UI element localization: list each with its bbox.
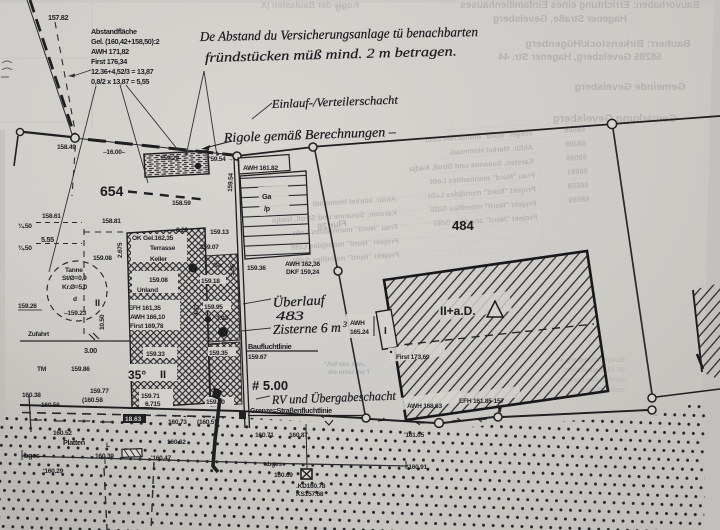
svg-text:"Auf des saw..: "Auf des saw.. [324, 361, 367, 368]
svg-text:160.87: 160.87 [289, 432, 308, 439]
svg-text:66659: 66659 [567, 180, 588, 190]
svg-text:First 176,34: First 176,34 [91, 57, 128, 66]
svg-text:159.26: 159.26 [18, 303, 37, 310]
svg-text:Ga: Ga [262, 192, 272, 201]
svg-text:2.675: 2.675 [117, 242, 124, 258]
svg-text:Zisterne 6 m: Zisterne 6 m [273, 320, 342, 337]
svg-text:159.08: 159.08 [93, 255, 112, 262]
svg-text:Kr.Ø=5,0: Kr.Ø=5,0 [62, 284, 88, 291]
svg-text:3.03: 3.03 [216, 315, 228, 322]
svg-text:160.56: 160.56 [41, 402, 60, 409]
svg-text:II+a.D.: II+a.D. [440, 304, 476, 318]
svg-text:18.63: 18.63 [125, 416, 142, 423]
svg-text:159.33: 159.33 [146, 351, 165, 358]
svg-text:159.54: 159.54 [227, 173, 235, 193]
svg-text:159.36: 159.36 [247, 265, 266, 272]
svg-text:165.24: 165.24 [350, 329, 369, 336]
svg-text:'160.91: '160.91 [407, 464, 428, 471]
svg-text:160.38: 160.38 [22, 392, 41, 399]
svg-text:Abstandfläche: Abstandfläche [91, 27, 137, 36]
svg-text:157.82: 157.82 [48, 13, 69, 22]
svg-text:Unland: Unland [137, 287, 158, 294]
svg-text:5.55: 5.55 [229, 263, 237, 276]
svg-text:# 5.00: # 5.00 [252, 378, 288, 393]
svg-text:First 173,69: First 173,69 [396, 354, 430, 361]
svg-text:AWH: AWH [350, 320, 365, 327]
svg-text:EFH 161,35: EFH 161,35 [128, 305, 161, 312]
svg-text:Baufluchtlinie: Baufluchtlinie [248, 342, 292, 351]
svg-text:159.18: 159.18 [201, 278, 220, 285]
svg-text:158.59: 158.59 [172, 200, 191, 207]
svg-text:AWH 161.82: AWH 161.82 [243, 165, 278, 172]
svg-text:159.35: 159.35 [209, 350, 228, 357]
svg-text:654: 654 [100, 183, 124, 199]
svg-text:158.81: 158.81 [102, 218, 121, 225]
svg-text:4.67: 4.67 [193, 303, 201, 316]
svg-text:8.20: 8.20 [176, 227, 188, 234]
svg-text:abges: abges [264, 461, 282, 468]
svg-text:Terrasse: Terrasse [150, 245, 176, 252]
svg-text:AWH 168.63: AWH 168.63 [407, 403, 442, 410]
svg-text:.KD160.78: .KD160.78 [296, 483, 326, 490]
svg-text:KS157.68: KS157.68 [296, 491, 324, 498]
svg-text:I: I [384, 326, 387, 337]
svg-text:(160.5): (160.5) [197, 419, 216, 426]
svg-text:(160.58: (160.58 [82, 397, 103, 404]
svg-text:Bauvorhaben: Errichtung eines: Bauvorhaben: Errichtung eines Einfamilie… [460, 0, 700, 11]
svg-text:–16.00–: –16.00– [103, 149, 126, 156]
svg-text:Zufahrt: Zufahrt [28, 331, 50, 338]
svg-text:159.95: 159.95 [204, 304, 223, 311]
svg-text:II: II [160, 369, 166, 381]
svg-text:bges: bges [24, 451, 40, 460]
svg-text:69096: 69096 [566, 152, 587, 162]
svg-text:Keller: Keller [150, 256, 168, 263]
svg-text:160.62: 160.62 [167, 439, 186, 446]
svg-text:Gel. (160,42+158,50):2: Gel. (160,42+158,50):2 [91, 37, 160, 46]
svg-text:159.86: 159.86 [71, 366, 90, 373]
svg-text:II: II [95, 298, 100, 308]
svg-text:10.50: 10.50 [99, 314, 106, 330]
svg-text:St/Ø=0,9: St/Ø=0,9 [62, 275, 87, 282]
svg-text:159.50: 159.50 [206, 399, 225, 406]
svg-text:L: L [106, 442, 110, 449]
svg-text:68691: 68691 [567, 166, 588, 176]
svg-text:159.71: 159.71 [141, 393, 160, 400]
svg-text:68495: 68495 [565, 138, 586, 148]
svg-text:die unter die T: die unter die T [328, 369, 371, 376]
svg-text:TM: TM [37, 366, 47, 373]
svg-text:EFH 161.85-157: EFH 161.85-157 [459, 398, 504, 405]
svg-text:AWH 162,36: AWH 162,36 [285, 261, 320, 268]
svg-text:Gemeinde Gevelsberg: Gemeinde Gevelsberg [575, 81, 686, 93]
svg-text:d: d [73, 296, 77, 303]
svg-text:159.67: 159.67 [248, 354, 267, 361]
svg-text:160.71: 160.71 [255, 432, 274, 439]
svg-text:Ga: Ga [213, 262, 222, 269]
svg-text:DKF 159,24: DKF 159,24 [286, 269, 320, 276]
svg-text:3: 3 [342, 320, 347, 329]
svg-text:'161.05: '161.05 [404, 432, 425, 439]
svg-text:159.29: 159.29 [160, 155, 179, 162]
svg-text:Platten: Platten [63, 438, 85, 447]
svg-text:6.715: 6.715 [145, 401, 161, 408]
svg-text:'160.29: '160.29 [43, 468, 64, 475]
svg-text:160.39: 160.39 [95, 453, 114, 460]
svg-text:rg: rg [336, 2, 345, 12]
svg-text:58285 Gevelsberg, Hagener Str.: 58285 Gevelsberg, Hagener Str. 44 [498, 52, 662, 63]
svg-text:159.08: 159.08 [149, 277, 168, 284]
svg-text:160.69: 160.69 [274, 472, 293, 479]
svg-text:/p: /p [264, 204, 271, 213]
svg-text:160.73: 160.73 [168, 419, 187, 426]
svg-text:Tanne: Tanne [65, 267, 83, 274]
svg-text:0,8/2 x 13,87 = 5,55: 0,8/2 x 13,87 = 5,55 [91, 77, 149, 86]
svg-text:158.61: 158.61 [42, 213, 61, 220]
svg-text:Grenze=Straßenfluchtlinie: Grenze=Straßenfluchtlinie [250, 406, 332, 415]
svg-text:¾.50: ¾.50 [18, 222, 32, 230]
svg-text:Bauherr: Birkenstock/Hügenberg: Bauherr: Birkenstock/Hügenberg [525, 38, 690, 50]
svg-text:158.49: 158.49 [57, 144, 76, 151]
svg-text:AWH 166,10: AWH 166,10 [130, 314, 165, 321]
svg-text:OK Gel.162,35: OK Gel.162,35 [132, 235, 174, 242]
svg-text:–159.23: –159.23 [64, 310, 87, 317]
svg-text:¾.50: ¾.50 [18, 244, 32, 252]
svg-text:159.77: 159.77 [90, 388, 109, 395]
svg-text:35°: 35° [128, 368, 146, 382]
svg-text:484: 484 [452, 218, 474, 233]
svg-text:'160,47: '160,47 [151, 455, 172, 462]
svg-text:68699: 68699 [568, 194, 589, 204]
svg-text:First 169,78: First 169,78 [130, 323, 164, 330]
svg-text:Hagener Straße, Gevelsberg: Hagener Straße, Gevelsberg [493, 14, 627, 25]
svg-text:3.00: 3.00 [84, 346, 97, 355]
svg-text:160.52: 160.52 [53, 430, 72, 437]
svg-text:159.07: 159.07 [200, 244, 219, 251]
svg-text:159.13: 159.13 [210, 229, 229, 236]
svg-text:'59.54 →: '59.54 → [209, 156, 234, 163]
svg-text:AWH 171,82: AWH 171,82 [91, 47, 129, 56]
svg-text:12.36+4,52/3 = 13,87: 12.36+4,52/3 = 13,87 [91, 67, 154, 76]
svg-text:5.55: 5.55 [41, 235, 54, 244]
